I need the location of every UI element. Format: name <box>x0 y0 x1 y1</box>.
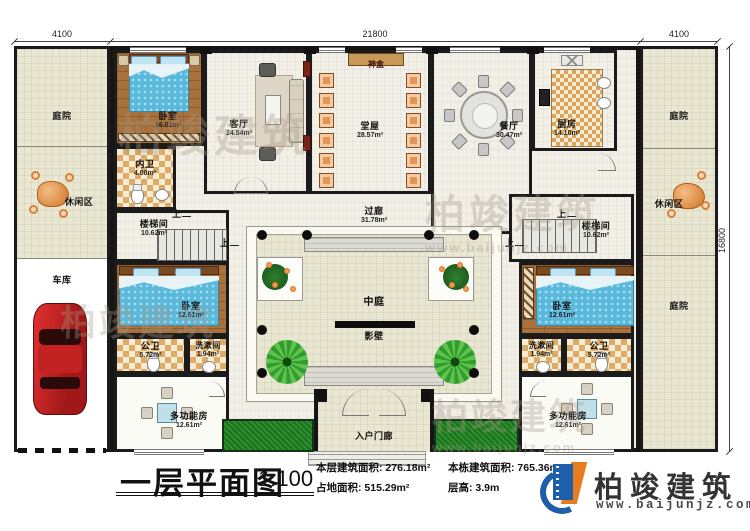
room-name: 内卫 <box>117 159 173 170</box>
room-courtyard-bottomright: 庭院 <box>643 301 715 312</box>
room-area: 1.94m² <box>522 351 561 359</box>
dining-chair <box>512 109 523 122</box>
column <box>257 325 267 335</box>
flower-planter <box>257 257 303 301</box>
column <box>469 368 479 378</box>
room-bedroom-bottom-left: 卧室 12.61m² <box>114 262 229 336</box>
room-area: 16.01m² <box>131 122 205 130</box>
stat-land-area: 占地面积: 515.29m² <box>316 479 430 499</box>
main-building: 卧室 16.01m² 内卫 4.00m² 客厅 24.54m² <box>110 46 640 452</box>
door-arc <box>251 177 268 194</box>
room-area: 1.94m² <box>190 351 226 359</box>
hall-chair <box>406 93 421 108</box>
room-living: 客厅 24.54m² <box>204 50 309 194</box>
stair-up-label: 上 <box>220 236 239 249</box>
room-public-bath-left: 公卫 5.72m² <box>114 336 187 374</box>
left-yard-strip: 庭院 休闲区 车库 <box>14 46 110 452</box>
entrance-porch: 入户门廊 <box>314 389 434 452</box>
column <box>424 230 434 240</box>
column <box>257 230 267 240</box>
yard-divider <box>17 146 107 147</box>
nightstand <box>189 55 200 66</box>
toilet <box>147 355 160 372</box>
hall-chair <box>406 153 421 168</box>
entry-door-arc <box>379 389 406 416</box>
dimension-line-top <box>14 41 718 42</box>
room-courtyard-topright: 庭院 <box>643 111 715 122</box>
car <box>33 303 87 415</box>
room-inner-bath: 内卫 4.00m² <box>114 146 176 210</box>
dining-chair <box>451 81 468 98</box>
room-name: 公卫 <box>117 341 184 352</box>
wardrobe <box>523 267 534 319</box>
chair <box>601 403 613 415</box>
yard-divider <box>643 148 715 149</box>
chair <box>561 403 573 415</box>
dining-chair <box>478 143 489 156</box>
dining-chair <box>451 133 468 150</box>
right-yard-strip: 庭院 休闲区 庭院 <box>640 46 718 452</box>
room-corridor-area: 31.78m² <box>336 217 412 225</box>
toilet <box>595 355 608 372</box>
armchair <box>259 147 276 161</box>
column <box>469 230 479 240</box>
door-arc <box>209 381 225 397</box>
room-porch: 入户门廊 <box>318 431 430 442</box>
sink <box>536 361 550 373</box>
stat-floor-area: 本层建筑面积: 276.18m² <box>316 459 430 479</box>
chair <box>581 423 593 435</box>
column <box>469 325 479 335</box>
hall-chair <box>406 73 421 88</box>
window <box>130 47 186 53</box>
room-bedroom-main: 卧室 16.01m² <box>114 50 204 146</box>
hall-chair <box>319 133 334 148</box>
stair-up-label: 上 <box>557 207 576 220</box>
column <box>302 230 312 240</box>
window <box>450 47 500 53</box>
palm-plant <box>266 340 308 384</box>
company-logo-icon <box>540 462 588 514</box>
room-name: 洗漱间 <box>522 341 561 351</box>
room-corridor: 过廊 <box>336 206 412 217</box>
flower-planter <box>428 257 474 301</box>
dining-chair <box>478 75 489 88</box>
room-stair-right: 楼梯间 10.62m² <box>509 194 634 262</box>
coffee-table <box>265 95 281 125</box>
toilet <box>131 187 144 204</box>
stats-column-1: 本层建筑面积: 276.18m² 占地面积: 515.29m² <box>316 459 430 499</box>
dim-tick <box>714 38 721 45</box>
room-area: 4.00m² <box>117 170 173 178</box>
room-name: 卧室 <box>131 111 205 122</box>
armchair <box>259 63 276 77</box>
bed <box>119 266 219 326</box>
walkway-top <box>304 237 444 252</box>
dining-chair <box>499 133 516 150</box>
dining-chair <box>444 109 455 122</box>
tv-cabinet <box>303 61 311 77</box>
room-courtyard-topleft: 庭院 <box>17 111 107 122</box>
stove <box>539 89 550 106</box>
kitchen-sink <box>597 77 611 89</box>
hall-chair <box>406 133 421 148</box>
window <box>544 47 590 53</box>
stone-decor <box>29 171 75 223</box>
grass-right <box>434 419 519 452</box>
stairs <box>522 219 597 253</box>
bed <box>129 54 189 112</box>
yard-divider <box>17 258 107 259</box>
dining-table <box>460 91 508 139</box>
tv-cabinet <box>303 135 311 151</box>
stair-up-label: 上 <box>505 236 524 249</box>
shrine-box: 神盒 <box>348 53 404 66</box>
stair-up-label: 上 <box>172 207 191 220</box>
room-area: 12.61m² <box>528 422 608 430</box>
chair <box>581 383 593 395</box>
hall-chair <box>319 93 334 108</box>
dim-top-center: 21800 <box>110 29 640 39</box>
hall-chair <box>319 113 334 128</box>
title-underline <box>116 492 314 496</box>
door-arc <box>598 153 616 171</box>
room-wash-left: 洗漱间 1.94m² <box>187 336 229 374</box>
hall-chair <box>319 173 334 188</box>
dim-tick <box>726 448 733 455</box>
shrine-label: 神盒 <box>368 60 384 69</box>
room-name: 洗漱间 <box>190 341 226 351</box>
kitchen-counter <box>551 69 603 147</box>
entry-door-arc <box>342 389 369 416</box>
hall-chair <box>319 73 334 88</box>
sink <box>202 361 216 373</box>
dimension-line-right <box>729 46 730 452</box>
window <box>319 47 345 53</box>
window <box>544 449 614 455</box>
garage-door-dashed <box>18 448 106 453</box>
room-public-bath-right: 公卫 5.72m² <box>564 336 634 374</box>
hall-chair <box>319 153 334 168</box>
room-main-hall: 神盒 堂屋 28.57m² <box>309 50 431 194</box>
chair <box>141 407 153 419</box>
room-multi-left: 多功能房 12.61m² <box>114 374 229 452</box>
chair <box>181 407 193 419</box>
door-arc <box>234 177 251 194</box>
dim-top-right: 4100 <box>640 29 718 39</box>
chair <box>161 427 173 439</box>
sink <box>155 189 169 201</box>
screen-wall <box>335 321 415 328</box>
dim-right-side: 16800 <box>717 228 727 253</box>
room-wash-right: 洗漱间 1.94m² <box>519 336 564 374</box>
chair <box>161 387 173 399</box>
dim-top-left: 4100 <box>14 29 110 39</box>
room-bedroom-bottom-right: 卧室 12.61m² <box>519 262 634 336</box>
window <box>134 449 204 455</box>
room-multi-right: 多功能房 12.61m² <box>519 374 634 452</box>
nightstand <box>118 55 129 66</box>
hall-chair <box>406 173 421 188</box>
company-url: www.baijunjz.com <box>596 498 750 512</box>
grass-left <box>222 419 314 452</box>
yard-divider <box>643 255 715 256</box>
column <box>257 368 267 378</box>
door-arc <box>530 381 546 397</box>
room-kitchen: 厨房 14.10m² <box>532 50 617 151</box>
walkway-bottom <box>304 366 444 386</box>
hall-chair <box>406 113 421 128</box>
floor-plan-canvas: 4100 21800 4100 16800 庭院 休闲区 车库 庭院 <box>0 0 750 531</box>
stone-decor <box>667 171 713 223</box>
dining-chair <box>499 81 516 98</box>
kitchen-sink <box>597 97 611 109</box>
plan-scale: 1:100 <box>258 466 313 492</box>
stairs <box>157 229 227 261</box>
multi-table <box>157 403 177 423</box>
room-name: 公卫 <box>567 341 631 352</box>
sofa <box>289 79 304 143</box>
multi-table <box>577 399 597 419</box>
palm-plant <box>434 340 476 384</box>
bed <box>536 266 634 326</box>
wardrobe <box>118 133 200 142</box>
range-hood-icon <box>561 55 583 66</box>
